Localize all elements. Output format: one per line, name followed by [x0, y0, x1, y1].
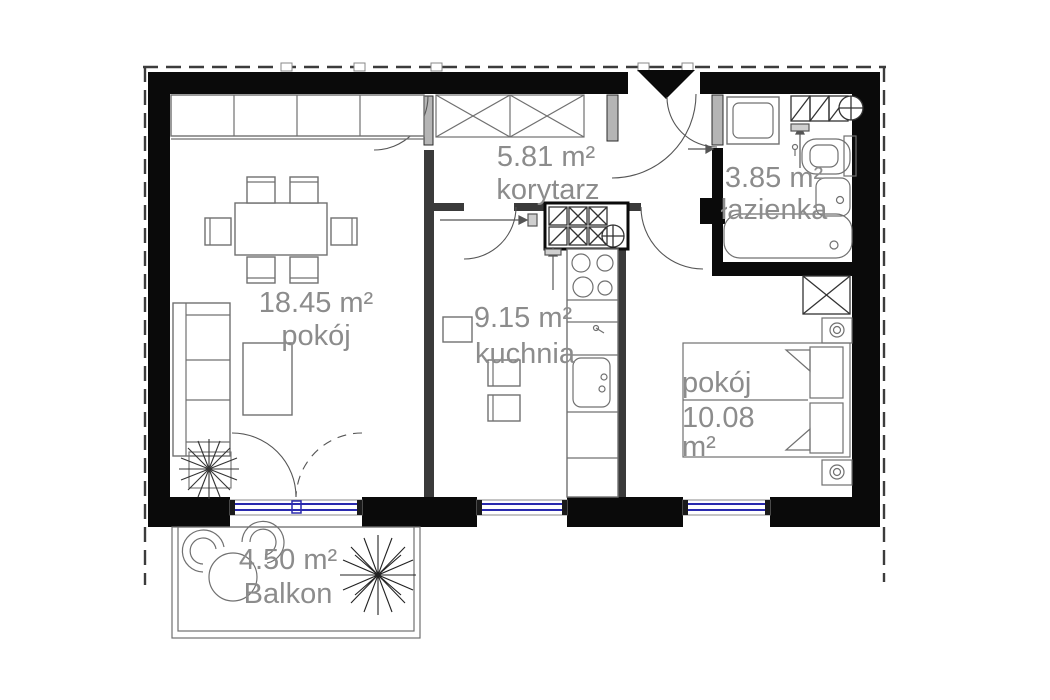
- bedroom-wardrobe: [803, 276, 850, 314]
- living-room-area-label: 18.45 m²: [259, 287, 374, 319]
- potted-plant: [179, 439, 239, 499]
- kitchen-area-label: 9.15 m²: [474, 302, 573, 334]
- bathroom-name-label: łazienka: [721, 194, 828, 226]
- balcony-french-doors: [232, 433, 362, 497]
- kitchen-door: [464, 207, 516, 259]
- dining-table-with-chairs: [205, 177, 357, 283]
- balcony-plant: [340, 535, 416, 615]
- kitchen-table: [443, 317, 472, 342]
- nightstand-bottom: [822, 460, 852, 485]
- coffee-table: [243, 343, 292, 415]
- sofa: [173, 303, 230, 456]
- wardrobe: [171, 95, 424, 139]
- balcony-door-glazing: [230, 500, 362, 515]
- floor-plan-drawing: 18.45 m² pokój 9.15 m² kuchnia 5.81 m² k…: [0, 0, 1050, 700]
- installation-shaft: [545, 203, 628, 249]
- wall-vent-duct: [791, 96, 863, 121]
- bedroom-name-label: pokój: [682, 367, 751, 399]
- kitchen-name-label: kuchnia: [475, 338, 576, 370]
- corridor-name-label: korytarz: [496, 174, 599, 206]
- balcony-area-label: 4.50 m²: [239, 544, 338, 576]
- washing-machine: [727, 97, 779, 144]
- corridor-wardrobe: [436, 95, 584, 137]
- bedroom-area-value-label: 10.08: [682, 402, 755, 434]
- bathroom-area-label: 3.85 m²: [725, 162, 824, 194]
- entrance-marker-triangle: [637, 70, 695, 99]
- kitchen-furniture: [443, 249, 618, 497]
- entrance-door: [607, 94, 696, 178]
- bedroom-window: [683, 500, 770, 515]
- kitchen-window: [477, 500, 567, 515]
- nightstand-top: [822, 318, 852, 343]
- living-room-name-label: pokój: [281, 320, 350, 352]
- corridor-area-label: 5.81 m²: [497, 141, 596, 173]
- bedroom-area-unit-label: m²: [682, 431, 716, 463]
- bedroom-door: [641, 207, 703, 269]
- balcony-name-label: Balkon: [244, 578, 333, 610]
- floor-plan-page: 18.45 m² pokój 9.15 m² kuchnia 5.81 m² k…: [0, 0, 1050, 700]
